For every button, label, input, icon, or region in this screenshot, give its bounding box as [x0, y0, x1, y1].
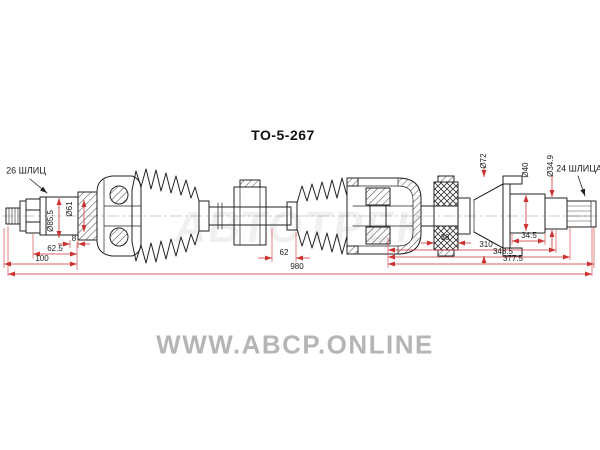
dim-width-8: 8	[72, 235, 76, 243]
dim-diameter-34-9: Ø34.9	[547, 155, 555, 177]
dim-length-34-5: 34.5	[521, 232, 537, 240]
dim-diameter-72: Ø72	[480, 153, 488, 168]
spline-count-left-label: 26 ШЛИЦ	[6, 167, 46, 176]
dim-diameter-40: Ø40	[522, 162, 530, 177]
dim-width-36: 36	[441, 234, 450, 242]
dim-length-100: 100	[35, 255, 48, 263]
dim-length-377-5: 377.5	[503, 255, 523, 263]
cv-axle-line-drawing	[0, 0, 600, 450]
dim-length-62: 62	[280, 249, 289, 257]
part-number-label: TO-5-267	[251, 128, 315, 142]
dim-diameter-61: Ø61	[66, 201, 74, 216]
axle-diagram: АВТОТРЕК	[0, 0, 600, 450]
dim-length-310: 310	[479, 241, 492, 249]
spline-count-right-label: 24 ШЛИЦА	[556, 165, 600, 174]
site-watermark: WWW.ABCP.ONLINE	[156, 330, 434, 361]
dim-diameter-85-5: Ø85.5	[47, 210, 55, 232]
dim-length-62-5: 62.5	[47, 245, 63, 253]
dim-total-length-980: 980	[290, 263, 303, 271]
